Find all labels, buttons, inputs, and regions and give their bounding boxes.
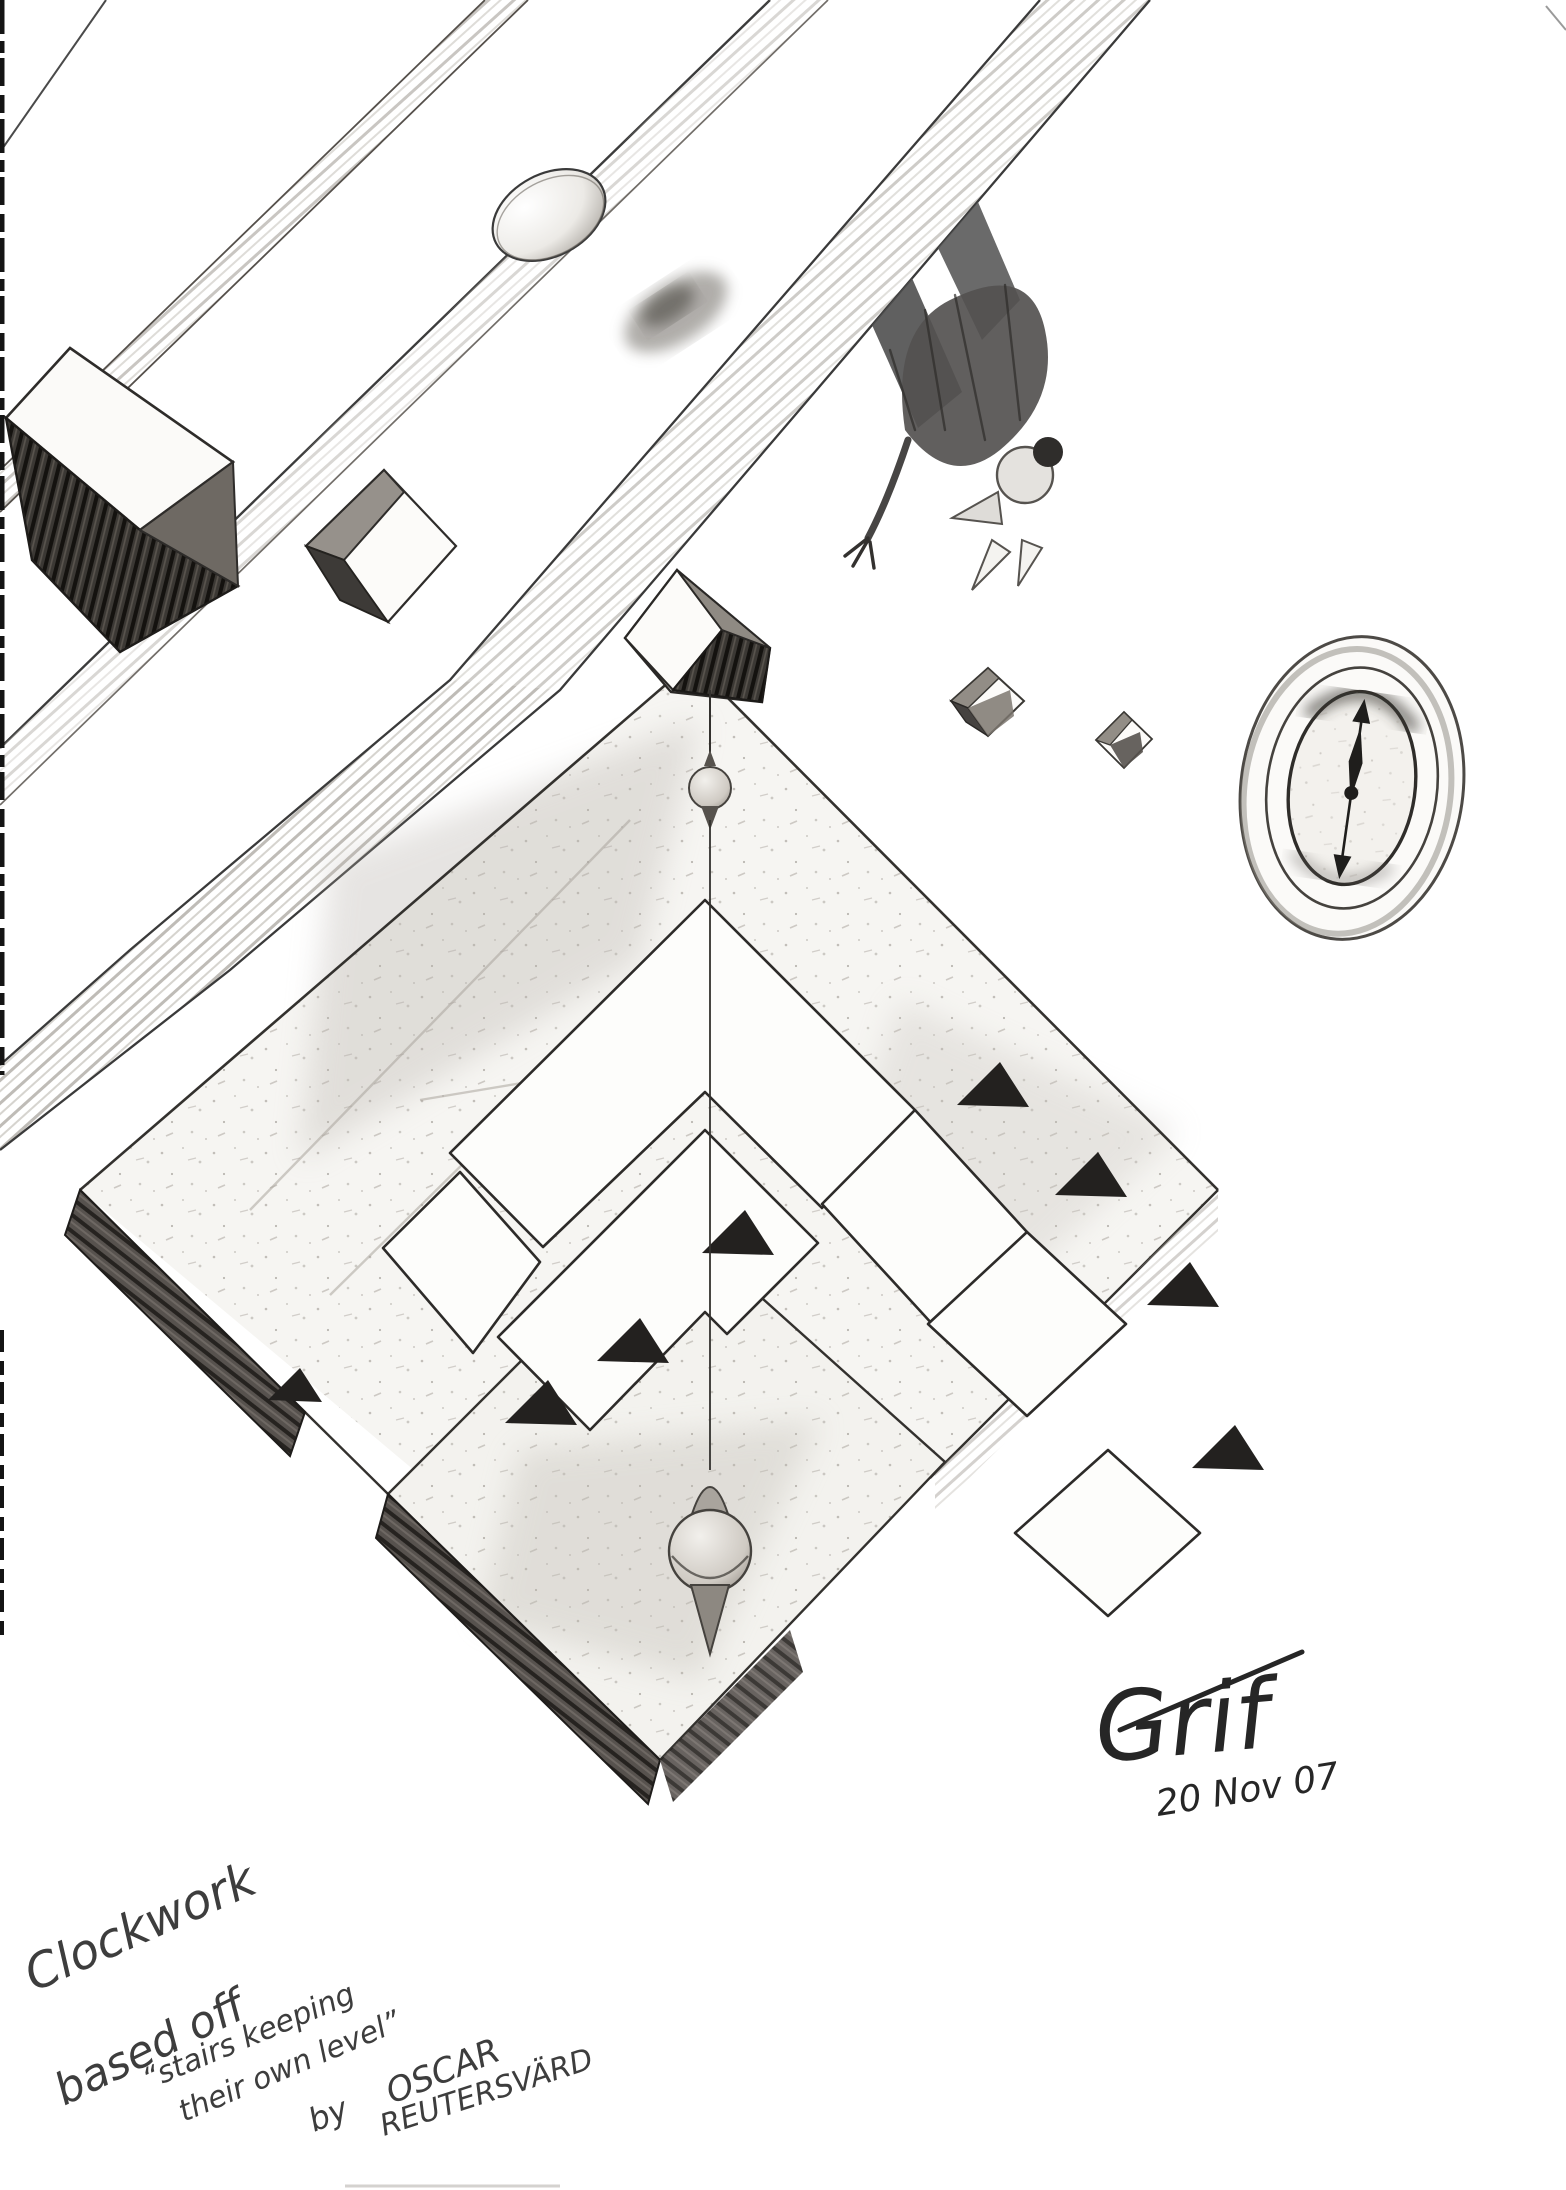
caption-by: by	[303, 2089, 355, 2139]
large-cube	[6, 348, 238, 652]
bottom-right-step-diamond	[1015, 1450, 1200, 1616]
clock	[1221, 622, 1483, 954]
drawing-canvas: Grif 20 Nov 07 Clockwork based off “stai…	[0, 0, 1566, 2190]
scanned-pencil-drawing: Grif 20 Nov 07 Clockwork based off “stai…	[0, 0, 1566, 2190]
corner-line	[0, 0, 106, 152]
open-cube	[306, 470, 456, 622]
caption-block: Clockwork based off “stairs keeping thei…	[16, 1851, 597, 2144]
floating-cube-2	[1096, 712, 1152, 768]
signature-block: Grif 20 Nov 07	[1090, 1652, 1342, 1825]
smudge-blob	[611, 255, 741, 368]
artist-signature: Grif	[1090, 1657, 1286, 1785]
floating-cube-1	[951, 668, 1024, 736]
